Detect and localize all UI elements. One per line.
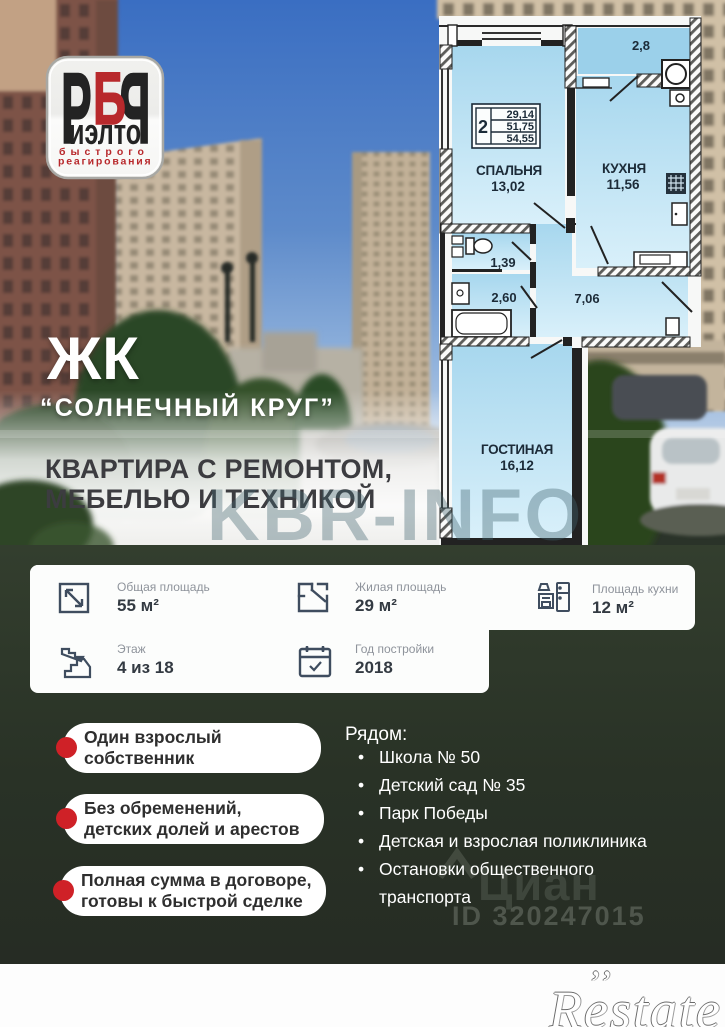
- svg-text:7,06: 7,06: [574, 291, 599, 306]
- svg-text:16,12: 16,12: [500, 458, 534, 473]
- svg-text:54,55: 54,55: [506, 133, 534, 145]
- svg-text:СПАЛЬНЯ: СПАЛЬНЯ: [476, 163, 542, 178]
- svg-text:1,39: 1,39: [490, 255, 515, 270]
- svg-text:КУХНЯ: КУХНЯ: [602, 161, 646, 176]
- svg-text:ГОСТИНАЯ: ГОСТИНАЯ: [481, 442, 553, 457]
- svg-text:2,60: 2,60: [491, 290, 516, 305]
- svg-text:13,02: 13,02: [491, 179, 525, 194]
- svg-text:11,56: 11,56: [606, 177, 640, 192]
- svg-text:2,8: 2,8: [632, 38, 650, 53]
- svg-text:29,14: 29,14: [506, 109, 534, 121]
- svg-text:реагирования: реагирования: [58, 156, 152, 168]
- svg-text:2: 2: [478, 117, 488, 137]
- svg-text:51,75: 51,75: [506, 121, 534, 133]
